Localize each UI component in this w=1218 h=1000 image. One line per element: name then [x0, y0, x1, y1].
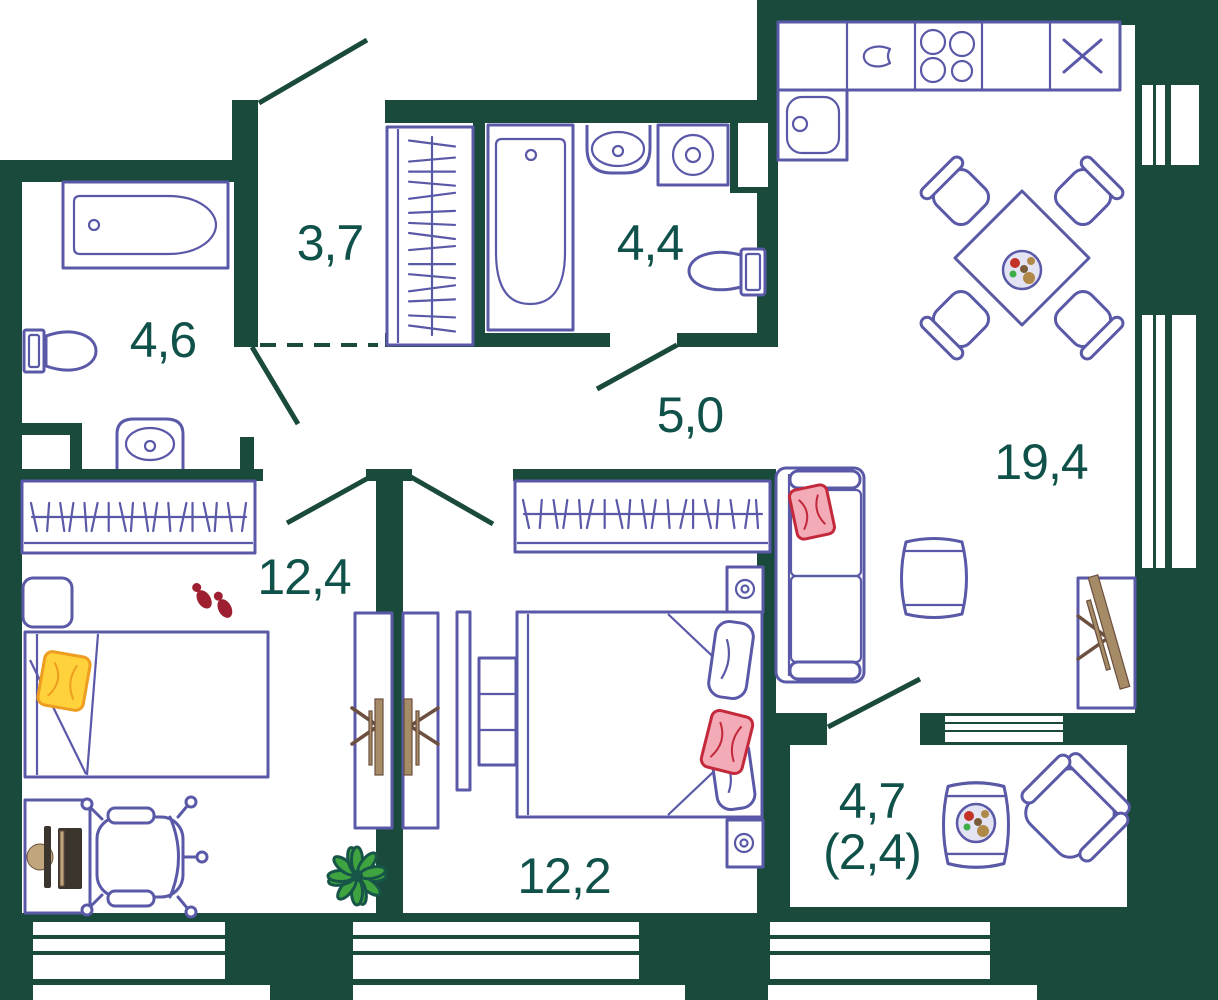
dining-chair-icon: [919, 284, 997, 362]
tv-stand-icon: [1078, 575, 1135, 708]
slippers-icon: [189, 580, 236, 620]
room-area-label: 3,7: [297, 215, 364, 271]
plate-of-food-icon: [1003, 251, 1041, 289]
office-chair-icon: [82, 797, 207, 917]
room-area-label: 12,4: [257, 549, 351, 605]
window-balcony-door-side: [945, 716, 1063, 742]
tv-icon: [375, 699, 383, 775]
floor-plan: 4,6 3,7 4,: [0, 0, 1218, 1000]
bedroom-left-door-swing: [287, 477, 370, 523]
bed-icon: [517, 612, 762, 817]
room-area-label: 5,0: [657, 387, 724, 443]
pillow-icon: [37, 650, 92, 711]
room-area-label: 12,2: [517, 848, 610, 904]
room-area-note: (2,4): [823, 824, 921, 880]
vent-shaft: [738, 123, 768, 187]
dining-chair-icon: [1048, 155, 1126, 233]
balcony-door-swing: [828, 679, 920, 727]
washbasin-icon: [587, 125, 650, 173]
tv-stand-icon: [352, 613, 392, 828]
room-area-label: 19,4: [994, 434, 1088, 490]
monitor-icon: [44, 826, 51, 888]
washbasin-icon: [117, 419, 183, 469]
desk-icon: [25, 800, 90, 913]
nightstand-icon: [727, 567, 763, 612]
room-bedroom-right: 12,2: [403, 481, 770, 904]
dining-chair-icon: [919, 155, 997, 233]
window-balcony: [770, 922, 990, 979]
room-entry-hall: 3,7: [297, 127, 473, 345]
room-area-label: 4,6: [130, 312, 197, 368]
kitchen-counter-icon: [778, 22, 1120, 90]
window-bottom-left: [33, 922, 225, 979]
room-kitchen-living: 19,4: [776, 22, 1135, 708]
pillow-icon: [788, 484, 836, 541]
coat-closet-icon: [387, 127, 473, 345]
room-bathroom-top: 4,4: [488, 125, 765, 330]
room-bedroom-left: 12,4: [22, 481, 392, 917]
bathtub-icon: [488, 125, 573, 330]
toilet-icon: [24, 330, 96, 372]
sofa-icon: [776, 468, 864, 682]
bench-icon: [457, 612, 470, 790]
dining-chair-icon: [1048, 284, 1126, 362]
side-table-icon: [902, 539, 967, 618]
room-area-label: 4,4: [617, 215, 684, 271]
bedroom-right-door-swing: [411, 477, 493, 524]
nightstand-icon: [23, 578, 72, 627]
tv-icon: [404, 699, 412, 775]
room-corridor: 5,0: [657, 387, 724, 443]
armchair-icon: [1011, 745, 1138, 872]
plate-of-food-icon: [957, 804, 995, 842]
entry-door-swing: [259, 40, 367, 103]
kitchen-sink-icon: [778, 90, 847, 160]
chest-of-drawers-icon: [479, 658, 516, 765]
bathroom-left-door-swing: [252, 347, 298, 424]
room-area-label: 4,7: [839, 773, 906, 829]
bathroom-top-door-swing: [597, 345, 677, 389]
wardrobe-icon: [515, 481, 770, 552]
bathtub-icon: [63, 182, 228, 268]
washing-machine-icon: [658, 125, 728, 185]
window-bottom-middle: [353, 922, 639, 979]
nightstand-icon: [727, 820, 763, 867]
toilet-icon: [689, 249, 765, 295]
wardrobe-icon: [22, 481, 255, 553]
plant-icon: [327, 846, 386, 905]
tv-stand-icon: [403, 613, 438, 828]
room-balcony: 4,7 (2,4): [823, 745, 1138, 880]
dining-table-icon: [919, 155, 1126, 362]
bed-icon: [25, 632, 268, 777]
